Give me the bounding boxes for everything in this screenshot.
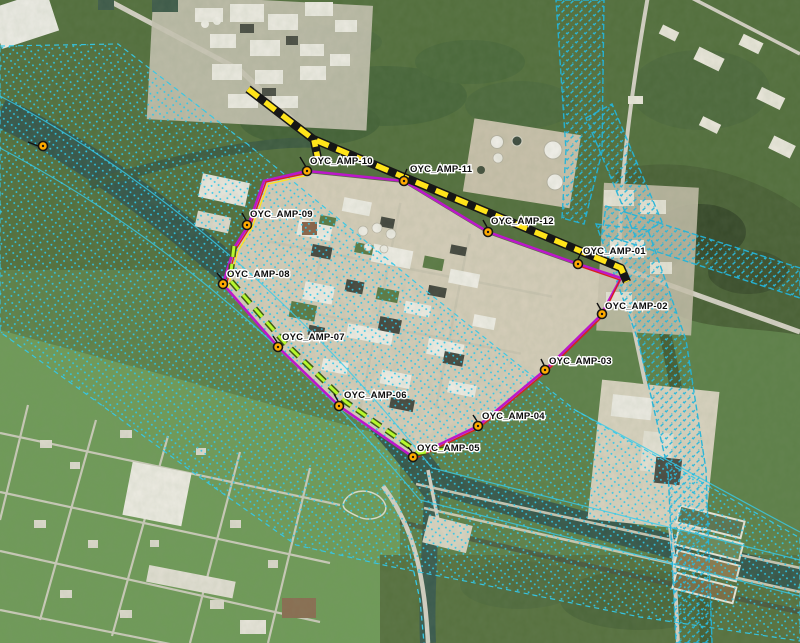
label-oyc-amp-10: OYC_AMP-10 [310, 156, 373, 167]
label-oyc-amp-08: OYC_AMP-08 [227, 269, 290, 280]
label-oyc-amp-04: OYC_AMP-04 [482, 411, 545, 422]
marker-oyc-amp-08[interactable] [219, 280, 228, 289]
marker-oyc-amp-09[interactable] [243, 221, 252, 230]
map-viewport[interactable]: OYC_AMP-01 OYC_AMP-02 OYC_AMP-03 OYC_AMP… [0, 0, 800, 643]
marker-oyc-amp-11[interactable] [400, 177, 409, 186]
marker-oyc-amp-04[interactable] [474, 422, 483, 431]
label-oyc-amp-09: OYC_AMP-09 [250, 209, 313, 220]
label-oyc-amp-12: OYC_AMP-12 [491, 216, 554, 227]
marker-oyc-amp-06[interactable] [335, 402, 344, 411]
marker-oyc-amp-07[interactable] [274, 343, 283, 352]
label-oyc-amp-06: OYC_AMP-06 [344, 390, 407, 401]
label-oyc-amp-07: OYC_AMP-07 [282, 332, 345, 343]
marker-oyc-amp-01[interactable] [574, 260, 583, 269]
label-oyc-amp-11: OYC_AMP-11 [410, 164, 473, 175]
label-oyc-amp-02: OYC_AMP-02 [605, 301, 668, 312]
label-oyc-amp-01: OYC_AMP-01 [583, 246, 646, 257]
marker-oyc-amp-12[interactable] [484, 228, 493, 237]
map-canvas[interactable]: OYC_AMP-01 OYC_AMP-02 OYC_AMP-03 OYC_AMP… [0, 0, 800, 643]
label-oyc-amp-05: OYC_AMP-05 [417, 443, 480, 454]
label-oyc-amp-03: OYC_AMP-03 [549, 356, 612, 367]
marker-oyc-amp-10[interactable] [303, 167, 312, 176]
marker-unlabeled-west[interactable] [39, 142, 48, 151]
